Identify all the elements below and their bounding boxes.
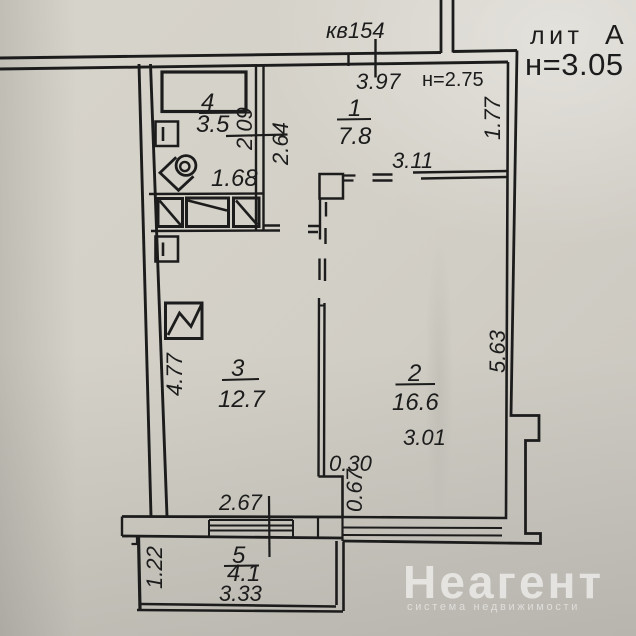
svg-text:3: 3 (231, 355, 245, 382)
svg-text:1.22: 1.22 (142, 546, 167, 589)
svg-text:кв154: кв154 (326, 18, 385, 43)
svg-text:3.33: 3.33 (219, 581, 263, 606)
svg-text:2.64: 2.64 (268, 122, 293, 166)
svg-text:5.63: 5.63 (485, 329, 510, 373)
svg-text:3.5: 3.5 (196, 111, 230, 138)
svg-text:0.67: 0.67 (342, 468, 367, 512)
svg-text:1: 1 (348, 95, 361, 122)
svg-text:лит: лит (530, 22, 584, 50)
svg-text:1.68: 1.68 (211, 165, 258, 192)
svg-text:3.01: 3.01 (403, 425, 446, 450)
svg-text:12.7: 12.7 (218, 386, 266, 413)
svg-text:2: 2 (407, 360, 421, 387)
svg-text:16.6: 16.6 (392, 389, 439, 416)
svg-text:7.8: 7.8 (338, 123, 372, 150)
svg-text:4.77: 4.77 (162, 352, 187, 396)
svg-text:3.97: 3.97 (356, 69, 401, 94)
svg-text:н=3.05: н=3.05 (525, 47, 624, 82)
svg-text:2.09: 2.09 (232, 107, 257, 151)
svg-text:2.67: 2.67 (218, 490, 263, 515)
svg-text:система недвижимости: система недвижимости (407, 601, 580, 613)
svg-text:1.77: 1.77 (480, 96, 505, 140)
svg-text:н=2.75: н=2.75 (422, 69, 484, 91)
svg-text:А: А (605, 19, 624, 50)
svg-text:3.11: 3.11 (392, 148, 433, 173)
